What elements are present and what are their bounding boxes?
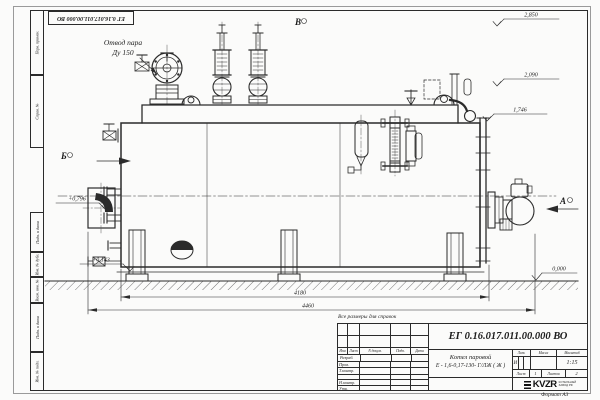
change-row — [338, 336, 428, 348]
product-name-line1: Котел паровой — [429, 354, 512, 361]
row-utv: Утв. — [338, 386, 428, 391]
support-leg-rear — [444, 233, 466, 281]
format-label: Формат А3 — [541, 392, 568, 398]
safety-valve-2 — [249, 22, 267, 104]
role-label: Утв. — [338, 386, 360, 391]
role-label: Н.контр. — [338, 380, 360, 386]
lit-label: Лит. — [513, 350, 531, 356]
phantom-outline — [424, 80, 440, 99]
drawing-sheet: Перв. примен. Справ. № Подп. и дата Инв.… — [0, 0, 600, 400]
col-podp: Подп. — [391, 348, 411, 354]
manufacturer-logo: KVZR КОТЕЛЬНЫЙ ЗАВОД РФ — [513, 378, 587, 390]
callout-steam-line2: Ду 150 — [111, 48, 133, 57]
support-leg-front — [126, 230, 148, 281]
col-docnum: N докум. — [360, 348, 391, 354]
elevation-marks — [56, 19, 577, 280]
water-level-gauge-2 — [406, 126, 422, 166]
view-mark-v — [302, 19, 307, 24]
water-level-gauge-1 — [381, 110, 409, 176]
front-nozzles — [104, 187, 121, 250]
dim-text-4180: 4180 — [294, 290, 306, 297]
company-cell — [429, 377, 512, 390]
sheet-value: 1 — [530, 370, 542, 377]
view-label-b: Б — [60, 151, 67, 161]
rear-flange-strip — [476, 118, 490, 263]
rear-elbow-pipe — [450, 74, 476, 123]
lifting-lug-left — [182, 96, 200, 105]
elevation-1746: 1,746 — [513, 107, 527, 114]
grid-header-row: Изм Лист N докум. Подп. Дата — [338, 348, 428, 355]
product-name-line2: Е - 1,6-0,17-130- Г/ЛЖ ( Ж ) — [429, 363, 512, 369]
ground-line — [45, 281, 578, 290]
product-name: Котел паровой Е - 1,6-0,17-130- Г/ЛЖ ( Ж… — [429, 350, 512, 377]
meta-value-row: И 1:15 — [513, 357, 587, 370]
col-data: Дата — [411, 348, 428, 354]
col-list: Лист — [348, 348, 360, 354]
support-leg-middle — [278, 230, 300, 281]
sheet-label: Лист — [513, 370, 530, 377]
doc-number: ЕГ 0.16.017.011.00.000 ВО — [429, 324, 587, 350]
manhole — [171, 241, 193, 259]
title-block-signature-grid: Изм Лист N докум. Подп. Дата Разраб. Про… — [338, 324, 429, 390]
mass-label: Масса — [531, 350, 557, 356]
role-label: Разраб. — [339, 355, 361, 361]
role-label: Т.контр. — [338, 368, 360, 374]
change-row — [338, 324, 428, 336]
sheets-label: Листов — [542, 370, 566, 377]
logo-bars-icon — [524, 380, 531, 389]
view-label-a: А — [559, 196, 566, 206]
role-label: Пров. — [338, 362, 360, 368]
scale-label: Масштаб — [557, 350, 587, 356]
dimension-4460 — [88, 232, 535, 314]
title-block-main: ЕГ 0.16.017.011.00.000 ВО Котел паровой … — [429, 324, 587, 390]
reference-note: Все размеры для справок — [338, 314, 396, 320]
safety-valve-1 — [213, 22, 231, 104]
top-plate-valve — [405, 90, 417, 105]
elevation-0000: 0,000 — [552, 267, 566, 273]
logo-subtext-2: ЗАВОД РФ — [559, 384, 577, 387]
scale-value: 1:15 — [557, 357, 587, 369]
burner — [488, 179, 534, 230]
meta-header-row: Лит. Масса Масштаб — [513, 350, 587, 357]
elevation-0796: +0,796 — [68, 197, 86, 203]
dim-text-4460: 4460 — [302, 303, 314, 310]
elevation-0143: +0,143 — [92, 257, 110, 264]
elevation-2850: 2,850 — [524, 13, 538, 19]
front-valve — [103, 124, 121, 142]
sheets-value: 2 — [566, 370, 587, 377]
callout-steam-line1: Отвод пара — [104, 38, 143, 47]
elevation-2090: 2,090 — [524, 73, 538, 79]
sheets-row: Лист 1 Листов 2 — [513, 370, 587, 378]
level-vessel — [348, 115, 368, 174]
col-izm: Изм — [338, 348, 348, 354]
logo-text: KVZR — [533, 379, 557, 390]
front-smokebox — [83, 183, 120, 233]
view-label-v: В — [294, 17, 301, 27]
mass-value — [531, 357, 557, 369]
steam-outlet-valve — [135, 45, 184, 104]
title-block: Изм Лист N докум. Подп. Дата Разраб. Про… — [337, 323, 588, 391]
